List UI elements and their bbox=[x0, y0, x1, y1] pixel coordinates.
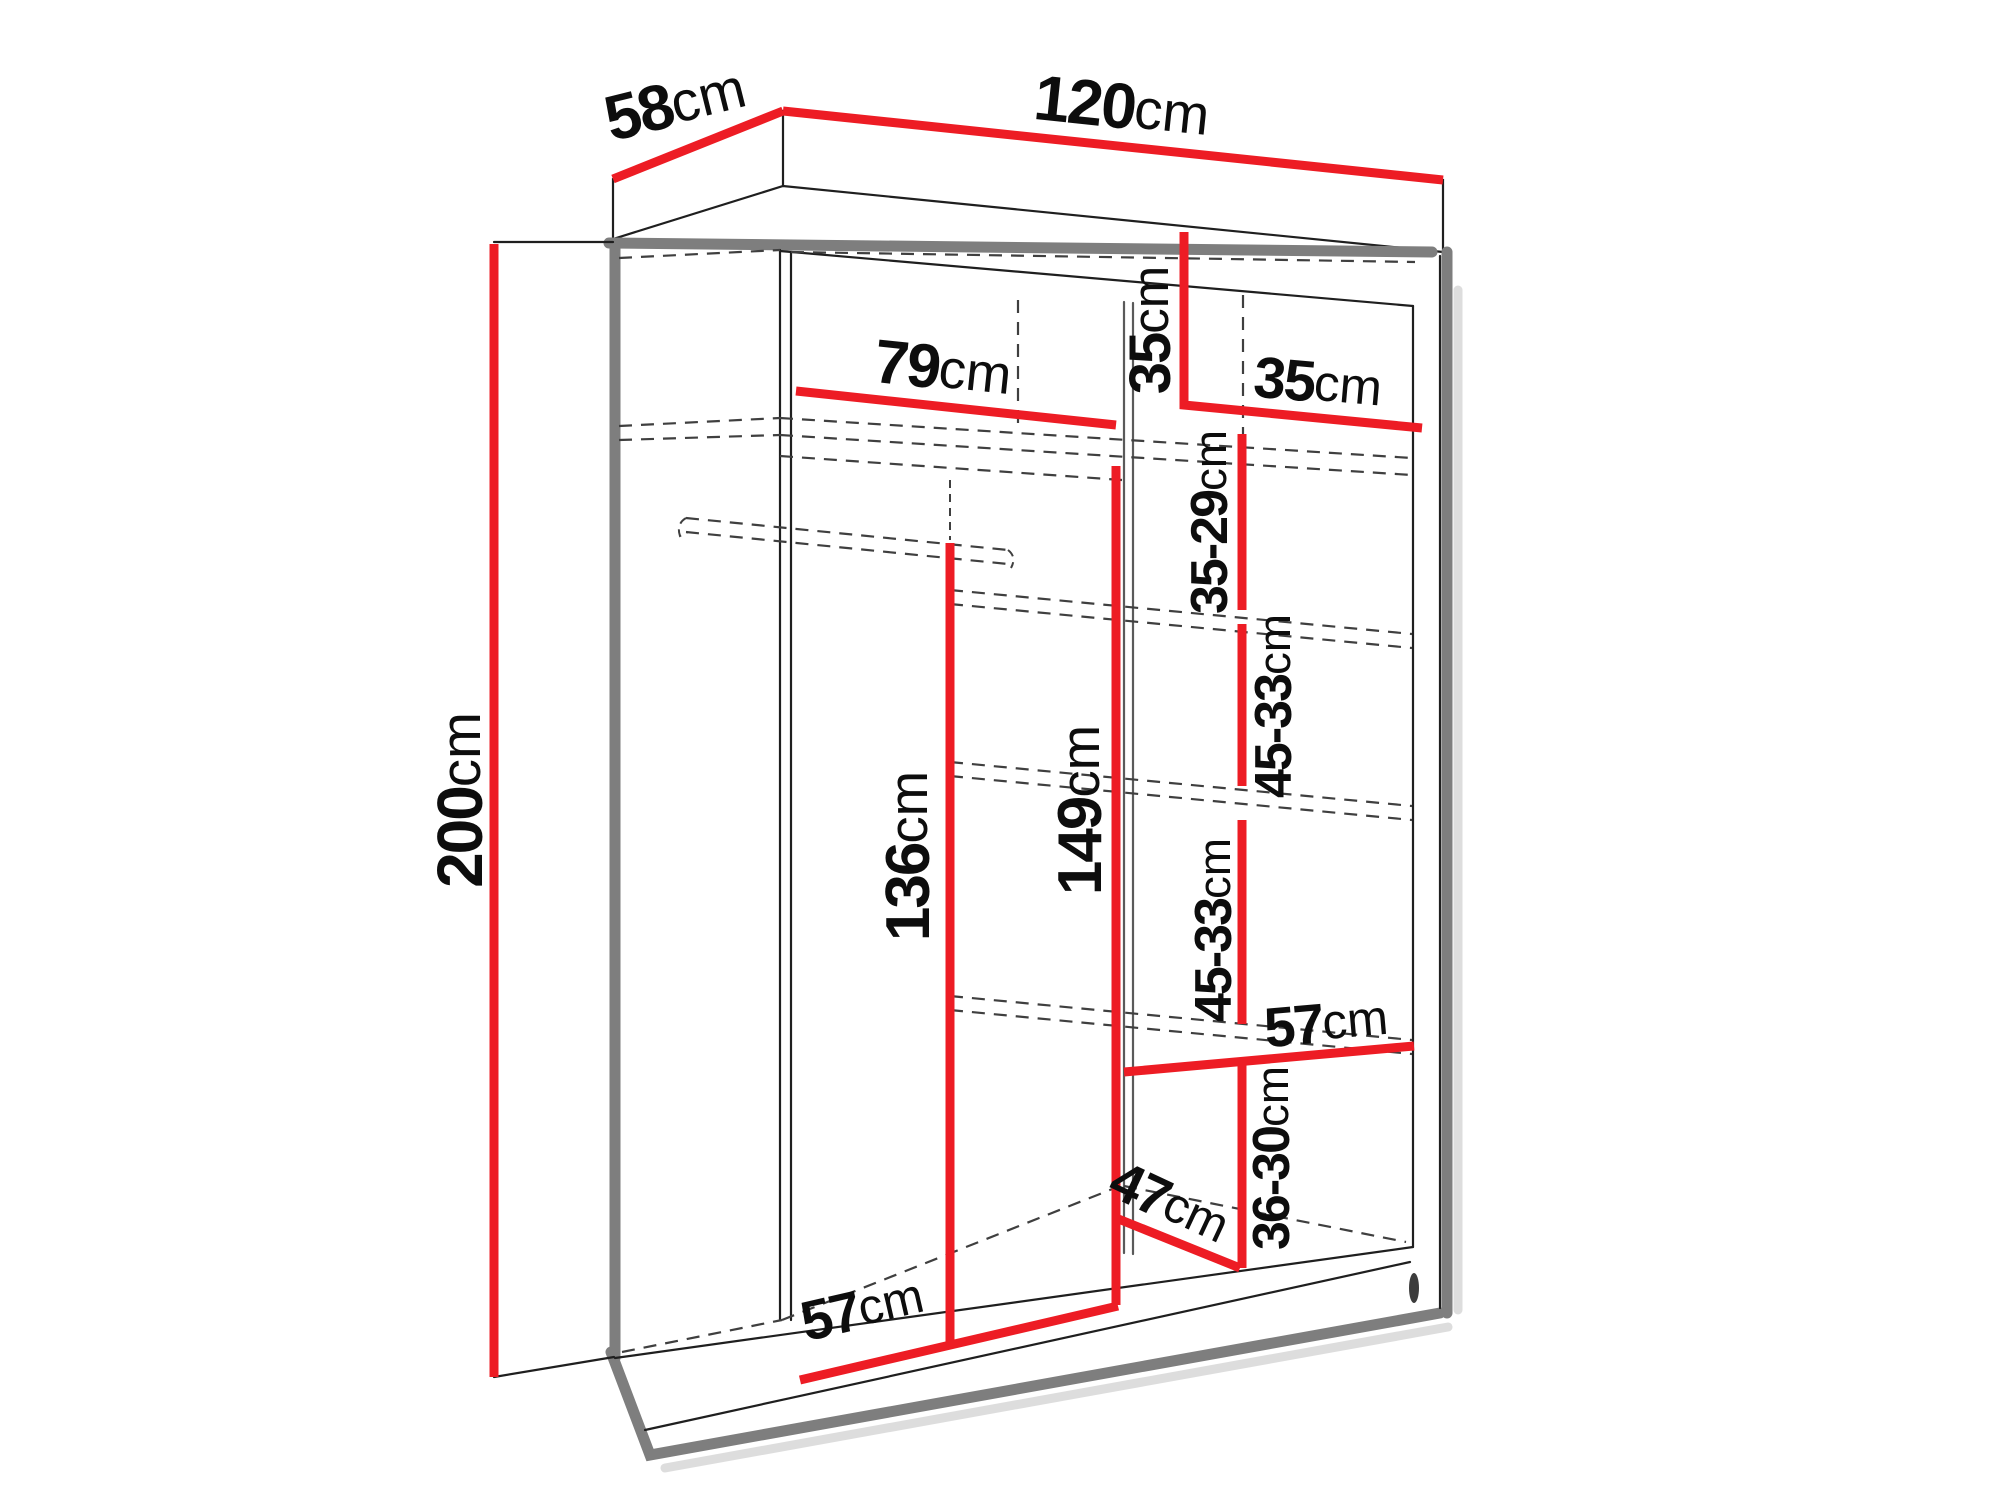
height-tick-bottom bbox=[494, 1357, 614, 1377]
diagram-canvas: 58cm 120cm 200cm 79cm 35cm 35cm 35-29cm … bbox=[0, 0, 2000, 1500]
top-shelf-left-edge-a bbox=[619, 418, 780, 426]
back-top-edge bbox=[780, 251, 1413, 306]
floor-left-depth-edge bbox=[622, 1320, 782, 1352]
plinth-bottom-shadow-edge bbox=[611, 1313, 1440, 1455]
carcass bbox=[609, 243, 1447, 1455]
hanging-rod-bottom-edge bbox=[686, 532, 1008, 564]
floor-soft-shadow bbox=[665, 1327, 1448, 1468]
top-shelf-front-edge bbox=[780, 456, 1122, 480]
dim-bottom-left-width-label: 57cm bbox=[795, 1263, 930, 1352]
hanging-rod-right-end bbox=[1008, 550, 1013, 568]
hidden-shelf-edge bbox=[950, 776, 1412, 820]
top-shelf-left-edge-b bbox=[619, 435, 780, 440]
dim-middle-height-label: 149cm bbox=[1046, 725, 1115, 895]
dim-left-width-label: 79cm bbox=[871, 326, 1015, 409]
hanging-rod-top-edge bbox=[686, 518, 1008, 550]
dim-shelf-gap3-label: 45-33cm bbox=[1185, 838, 1243, 1022]
top-left-depth-edge bbox=[619, 250, 780, 258]
dim-shelf-gap2-label: 45-33cm bbox=[1245, 614, 1303, 798]
hidden-shelf-edge bbox=[950, 762, 1412, 806]
wardrobe-dimension-diagram: 58cm 120cm 200cm 79cm 35cm 35cm 35-29cm … bbox=[0, 0, 2000, 1500]
dim-top-right-width-label: 35cm bbox=[1251, 344, 1385, 420]
dim-shelf-gap4-label: 36-30cm bbox=[1243, 1066, 1301, 1250]
dim-top-right-height-label: 35cm bbox=[1118, 266, 1183, 395]
dim-shelf-gap1-label: 35-29cm bbox=[1181, 430, 1239, 614]
dim-height-label: 200cm bbox=[424, 712, 496, 888]
top-shelf-under-edge bbox=[780, 435, 1412, 475]
hanging-rod-left-end bbox=[679, 518, 687, 536]
right-foot-notch bbox=[1409, 1273, 1419, 1303]
dim-left-height-label: 136cm bbox=[874, 771, 943, 941]
top-front-edge bbox=[609, 243, 1432, 252]
